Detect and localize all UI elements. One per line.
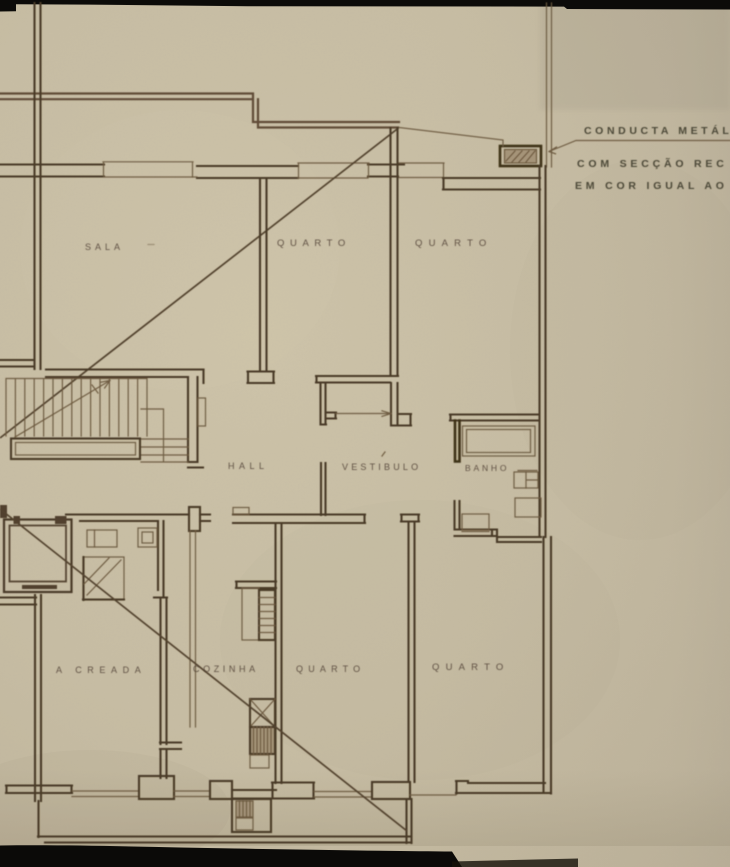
svg-text:QUARTO: QUARTO <box>277 238 351 249</box>
svg-text:CONDUCTA METÁL: CONDUCTA METÁL <box>584 124 730 137</box>
svg-text:VESTIBULO: VESTIBULO <box>342 462 421 472</box>
svg-text:HALL: HALL <box>228 461 269 471</box>
svg-text:SALA: SALA <box>85 242 124 252</box>
svg-text:A CREADA: A CREADA <box>56 665 146 675</box>
svg-text:BANHO: BANHO <box>465 463 509 473</box>
svg-text:QUARTO: QUARTO <box>415 238 493 249</box>
svg-text:QUARTO: QUARTO <box>432 662 510 673</box>
svg-text:COZINHA: COZINHA <box>193 664 259 674</box>
svg-text:COM SECÇÃO REC: COM SECÇÃO REC <box>577 157 728 170</box>
svg-text:EM COR IGUAL AO: EM COR IGUAL AO <box>575 180 728 192</box>
svg-text:QUARTO: QUARTO <box>296 664 365 674</box>
